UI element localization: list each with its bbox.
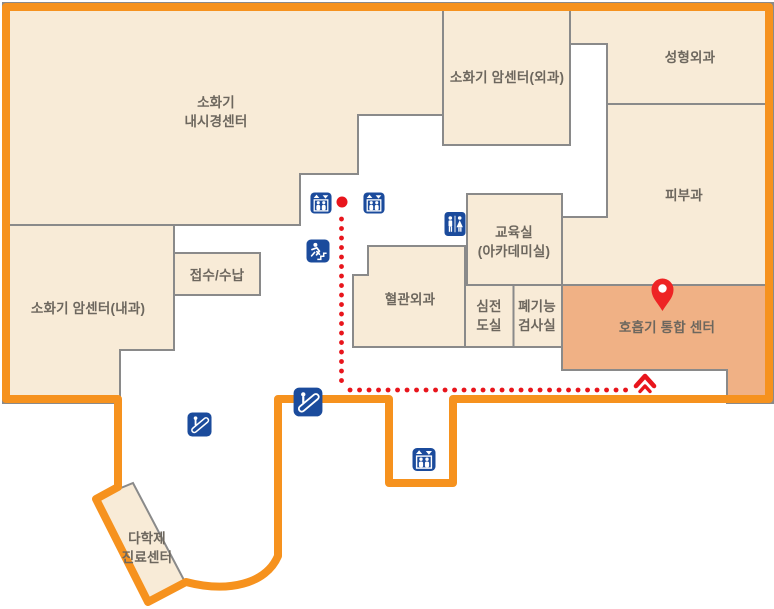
room-label: (아카데미실) (478, 243, 551, 259)
room-label: 성형외과 (665, 49, 716, 65)
room-label: 교육실 (495, 225, 533, 240)
room-pulmonary-function (514, 285, 563, 347)
escalator-icon (187, 412, 211, 436)
room-label: 검사실 (518, 318, 556, 333)
restroom-icon (445, 212, 466, 236)
room-label: 다학제 (128, 531, 166, 546)
room-label: 폐기능 (518, 299, 556, 314)
pin-center-dot (658, 284, 666, 292)
room-label: 소화기 암센터(외과) (450, 69, 564, 85)
elevator-icon (363, 192, 384, 213)
room-label: 도실 (476, 318, 501, 333)
escalator-icon (294, 388, 323, 417)
room-label: 심전 (476, 298, 501, 314)
room-label: 내시경센터 (184, 113, 247, 129)
room-label: 피부과 (665, 188, 703, 203)
elevator-icon (413, 448, 436, 471)
room-label: 혈관외과 (385, 291, 436, 307)
room-label: 소화기 (197, 95, 235, 110)
elevator-icon (310, 192, 331, 213)
room-ecg (465, 285, 514, 347)
floor-map: 소화기 내시경센터 소화기 암센터(외과) 성형외과 피부과 소화기 암센터(내… (0, 0, 774, 609)
room-label: 소화기 암센터(내과) (31, 301, 145, 316)
stairs-icon (307, 240, 330, 263)
room-label: 진료센터 (122, 549, 172, 565)
room-label: 접수/수납 (190, 267, 245, 283)
room-label: 호흡기 통합 센터 (619, 319, 715, 335)
route-start-dot (337, 197, 348, 208)
